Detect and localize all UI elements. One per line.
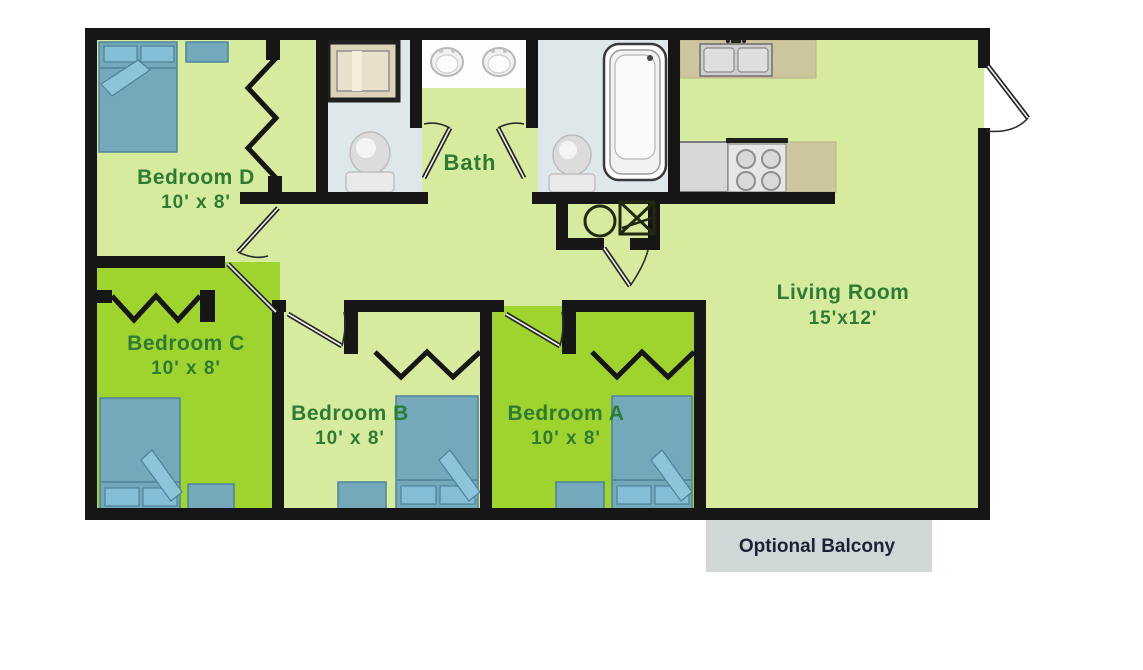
nightstand-icon [188,484,234,510]
label-bedroom-b-dims: 10' x 8' [315,428,385,449]
burner-icon [762,172,780,190]
burner-icon [737,172,755,190]
label-bedroom-b: Bedroom B [291,402,409,425]
bathtub-icon [604,44,666,180]
floor-plan: Bedroom D 10' x 8' Bedroom C 10' x 8' Be… [0,0,1143,670]
door-entry [986,66,1028,131]
label-balcony: Optional Balcony [739,536,896,557]
label-living-room-dims: 15'x12' [809,308,878,329]
vanity-sink-icon [431,48,463,76]
burner-icon [762,150,780,168]
floor-plan-canvas: Bedroom D 10' x 8' Bedroom C 10' x 8' Be… [0,0,1143,670]
dresser-icon [186,42,228,62]
label-living-room: Living Room [777,281,910,304]
bed-icon [100,398,182,510]
nightstand-icon [338,482,386,510]
bed-icon [99,42,177,152]
label-bath: Bath [444,150,497,175]
label-bedroom-d: Bedroom D [137,166,255,189]
refrigerator-icon [674,142,728,192]
toilet-icon [346,132,394,192]
nightstand-icon [556,482,604,510]
label-bedroom-d-dims: 10' x 8' [161,192,231,213]
label-bedroom-c-dims: 10' x 8' [151,358,221,379]
burner-icon [737,150,755,168]
label-bedroom-c: Bedroom C [127,332,245,355]
label-bedroom-a: Bedroom A [508,402,625,425]
vanity-sink-icon [483,48,515,76]
kitchen-counter-low [786,142,836,192]
label-bedroom-a-dims: 10' x 8' [531,428,601,449]
toilet-icon [549,135,595,192]
